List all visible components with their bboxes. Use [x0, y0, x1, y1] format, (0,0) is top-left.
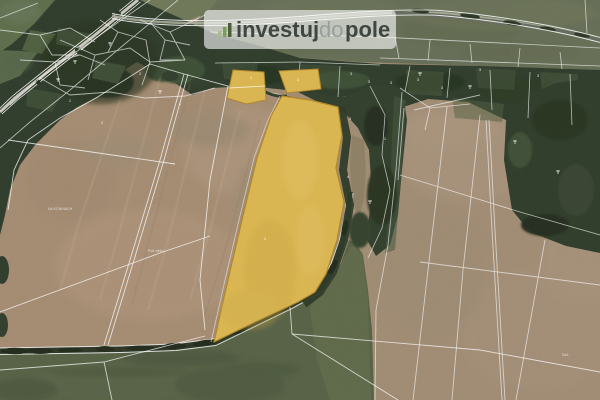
svg-text:do: do	[319, 17, 343, 42]
svg-text:pole: pole	[345, 17, 390, 42]
svg-text:investuj: investuj	[236, 17, 319, 42]
